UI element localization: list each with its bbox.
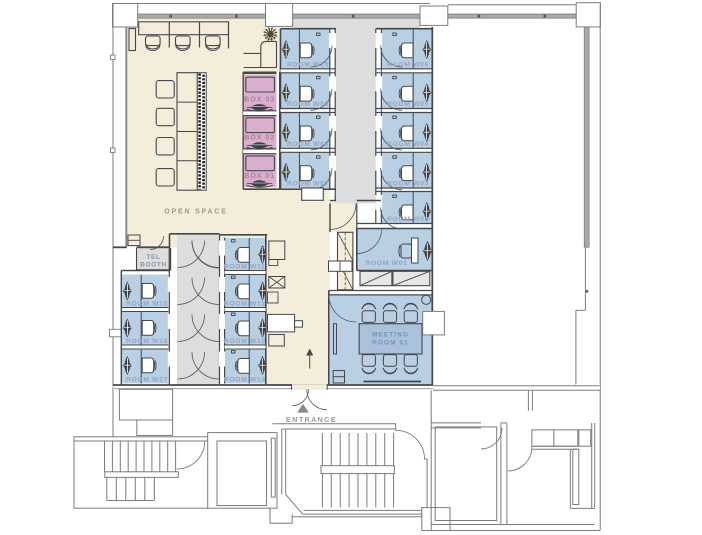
svg-text:BOX 03: BOX 03 bbox=[244, 97, 275, 104]
svg-text:BOX 01: BOX 01 bbox=[244, 173, 275, 180]
svg-text:ROOM W09: ROOM W09 bbox=[287, 101, 329, 108]
svg-text:ROOM W11: ROOM W11 bbox=[224, 264, 266, 271]
svg-text:ROOM W15: ROOM W15 bbox=[126, 301, 168, 308]
svg-text:ROOM 01: ROOM 01 bbox=[372, 339, 409, 346]
svg-text:ROOM W07: ROOM W07 bbox=[287, 181, 329, 188]
svg-text:BOOTH: BOOTH bbox=[140, 262, 167, 269]
svg-text:ROOM W06: ROOM W06 bbox=[387, 62, 429, 69]
svg-text:OPEN SPACE: OPEN SPACE bbox=[164, 209, 227, 216]
svg-text:ROOM W16: ROOM W16 bbox=[126, 338, 168, 345]
svg-text:BOX 02: BOX 02 bbox=[244, 135, 275, 142]
svg-text:ROOM W01: ROOM W01 bbox=[366, 260, 408, 267]
svg-text:TEL: TEL bbox=[146, 254, 160, 261]
svg-text:ROOM W03: ROOM W03 bbox=[387, 181, 429, 188]
svg-text:ENTRANCE: ENTRANCE bbox=[286, 415, 337, 424]
svg-text:ROOM W02: ROOM W02 bbox=[387, 216, 429, 223]
svg-text:ROOM W10: ROOM W10 bbox=[287, 62, 329, 69]
svg-text:ROOM W12: ROOM W12 bbox=[224, 301, 266, 308]
svg-text:ROOM W08: ROOM W08 bbox=[287, 141, 329, 148]
svg-text:ROOM W14: ROOM W14 bbox=[224, 377, 266, 384]
svg-text:ROOM W17: ROOM W17 bbox=[126, 377, 168, 384]
svg-text:ROOM W05: ROOM W05 bbox=[387, 101, 429, 108]
svg-text:MEETING: MEETING bbox=[372, 331, 409, 338]
svg-text:ROOM W04: ROOM W04 bbox=[387, 141, 429, 148]
svg-text:ROOM W13: ROOM W13 bbox=[224, 338, 266, 345]
